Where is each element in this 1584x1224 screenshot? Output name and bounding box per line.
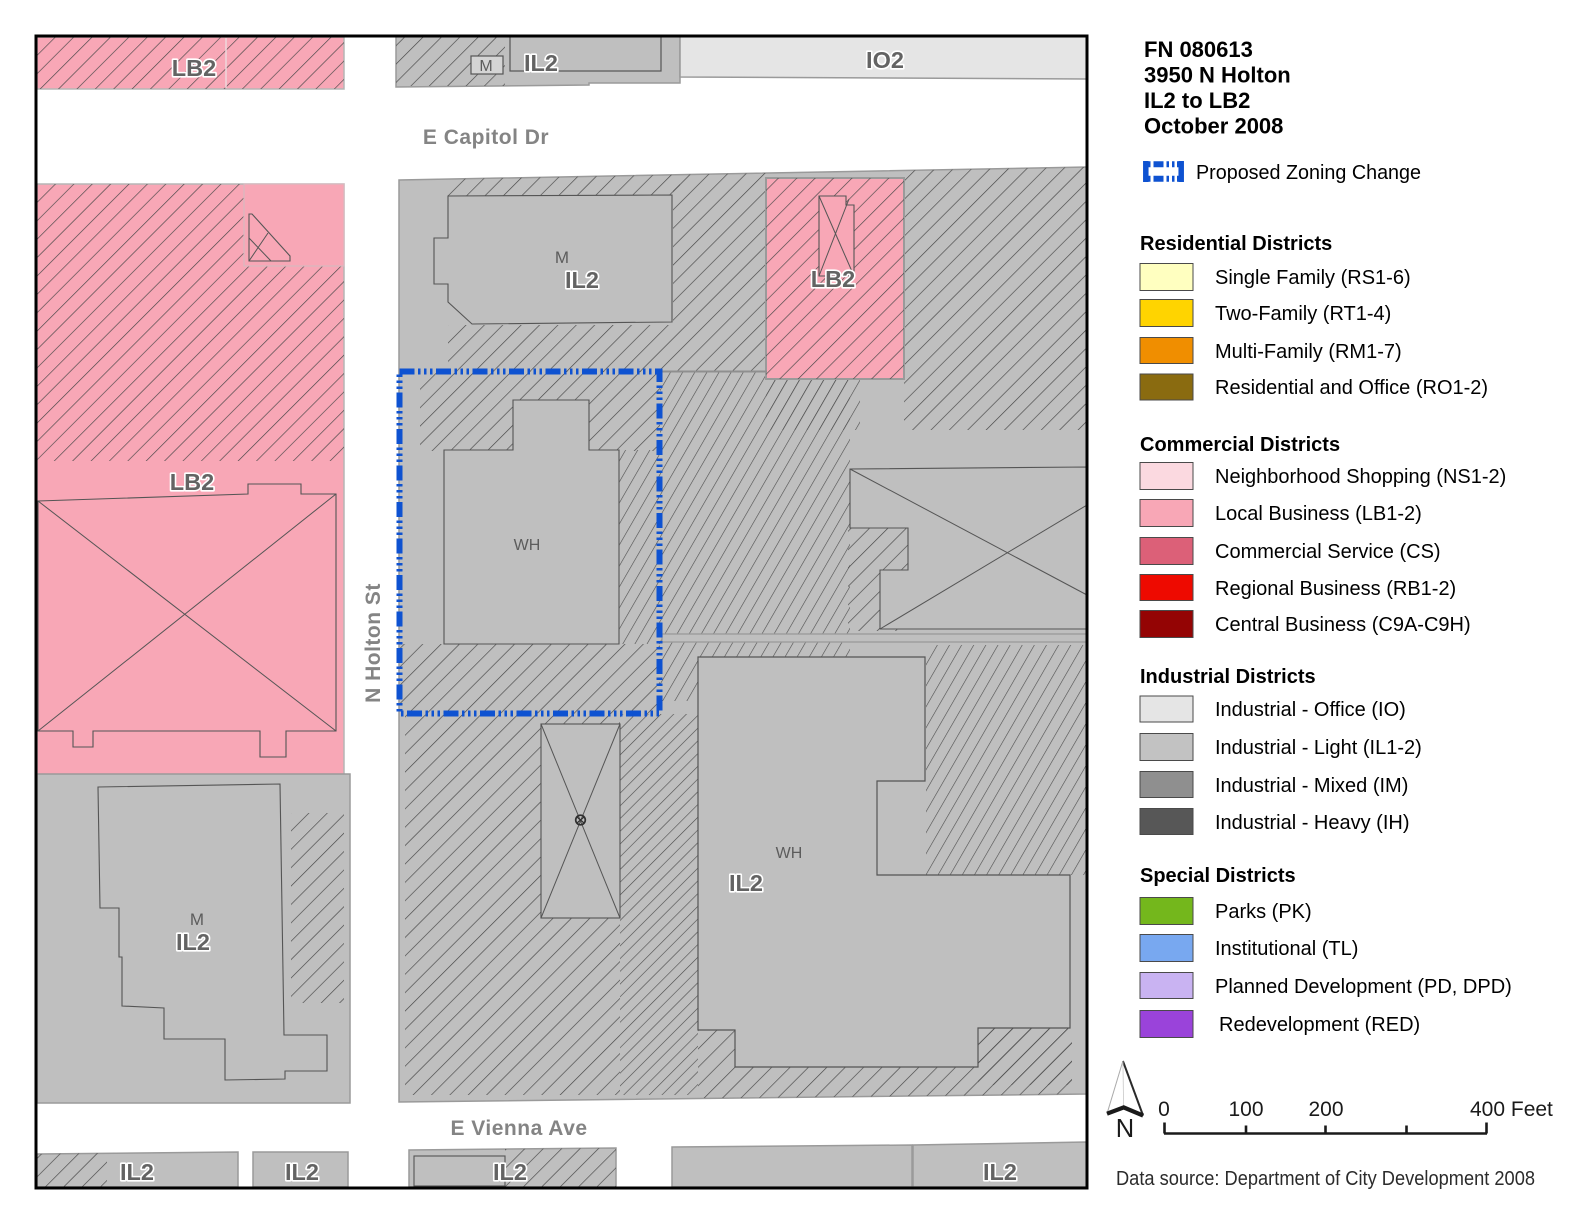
svg-text:IL2: IL2 [565,267,599,293]
svg-text:200: 200 [1308,1098,1343,1121]
svg-text:Special Districts: Special Districts [1140,865,1296,887]
svg-text:LB2: LB2 [811,266,855,292]
svg-text:Commercial Service (CS): Commercial Service (CS) [1215,541,1441,563]
svg-text:400 Feet: 400 Feet [1470,1098,1553,1121]
svg-text:Residential and Office (RO1-2): Residential and Office (RO1-2) [1215,377,1488,399]
svg-text:FN 080613: FN 080613 [1144,37,1253,62]
svg-text:0: 0 [1158,1098,1170,1121]
svg-text:Regional Business (RB1-2): Regional Business (RB1-2) [1215,578,1456,600]
svg-text:IL2: IL2 [983,1159,1017,1185]
svg-text:Industrial - Mixed (IM): Industrial - Mixed (IM) [1215,775,1408,797]
svg-text:WH: WH [514,537,541,554]
svg-text:N Holton St: N Holton St [362,583,385,703]
svg-text:Redevelopment (RED): Redevelopment (RED) [1219,1014,1420,1036]
svg-text:Data source: Department of Ci: Data source: Department of City Developm… [1116,1168,1535,1190]
svg-text:E Vienna Ave: E Vienna Ave [450,1117,587,1140]
svg-text:Neighborhood Shopping (NS1-2): Neighborhood Shopping (NS1-2) [1215,466,1506,488]
svg-text:IL2: IL2 [176,929,210,955]
svg-text:Parks (PK): Parks (PK) [1215,901,1312,923]
svg-text:Central Business (C9A-C9H): Central Business (C9A-C9H) [1215,614,1471,636]
svg-text:IL2: IL2 [493,1159,527,1185]
svg-text:100: 100 [1228,1098,1263,1121]
svg-text:IL2: IL2 [729,870,763,896]
svg-text:M: M [190,910,204,929]
svg-text:Planned Development (PD, DPD): Planned Development (PD, DPD) [1215,976,1512,998]
svg-text:E Capitol Dr: E Capitol Dr [423,126,549,149]
svg-text:Industrial Districts: Industrial Districts [1140,666,1316,688]
svg-text:October 2008: October 2008 [1144,114,1283,139]
svg-text:Local Business (LB1-2): Local Business (LB1-2) [1215,503,1422,525]
svg-text:Industrial - Office (IO): Industrial - Office (IO) [1215,699,1406,721]
svg-text:LB2: LB2 [170,469,214,495]
svg-text:WH: WH [776,845,803,862]
svg-text:IO2: IO2 [866,47,904,73]
svg-text:Institutional (TL): Institutional (TL) [1215,938,1358,960]
svg-text:IL2: IL2 [524,50,558,76]
svg-text:IL2 to LB2: IL2 to LB2 [1144,88,1250,113]
svg-text:LB2: LB2 [172,55,216,81]
svg-text:Industrial - Light (IL1-2): Industrial - Light (IL1-2) [1215,737,1422,759]
svg-text:Proposed Zoning Change: Proposed Zoning Change [1196,162,1421,184]
svg-text:Single Family (RS1-6): Single Family (RS1-6) [1215,267,1411,289]
svg-text:M: M [555,248,569,267]
svg-text:3950 N Holton: 3950 N Holton [1144,63,1291,88]
svg-text:IL2: IL2 [120,1159,154,1185]
svg-text:Commercial Districts: Commercial Districts [1140,434,1340,456]
svg-text:Multi-Family (RM1-7): Multi-Family (RM1-7) [1215,341,1402,363]
svg-text:IL2: IL2 [285,1159,319,1185]
svg-text:Industrial - Heavy (IH): Industrial - Heavy (IH) [1215,812,1410,834]
svg-text:M: M [479,58,492,75]
svg-text:N: N [1116,1115,1134,1143]
svg-text:Residential Districts: Residential Districts [1140,233,1332,255]
svg-text:Two-Family (RT1-4): Two-Family (RT1-4) [1215,303,1391,325]
